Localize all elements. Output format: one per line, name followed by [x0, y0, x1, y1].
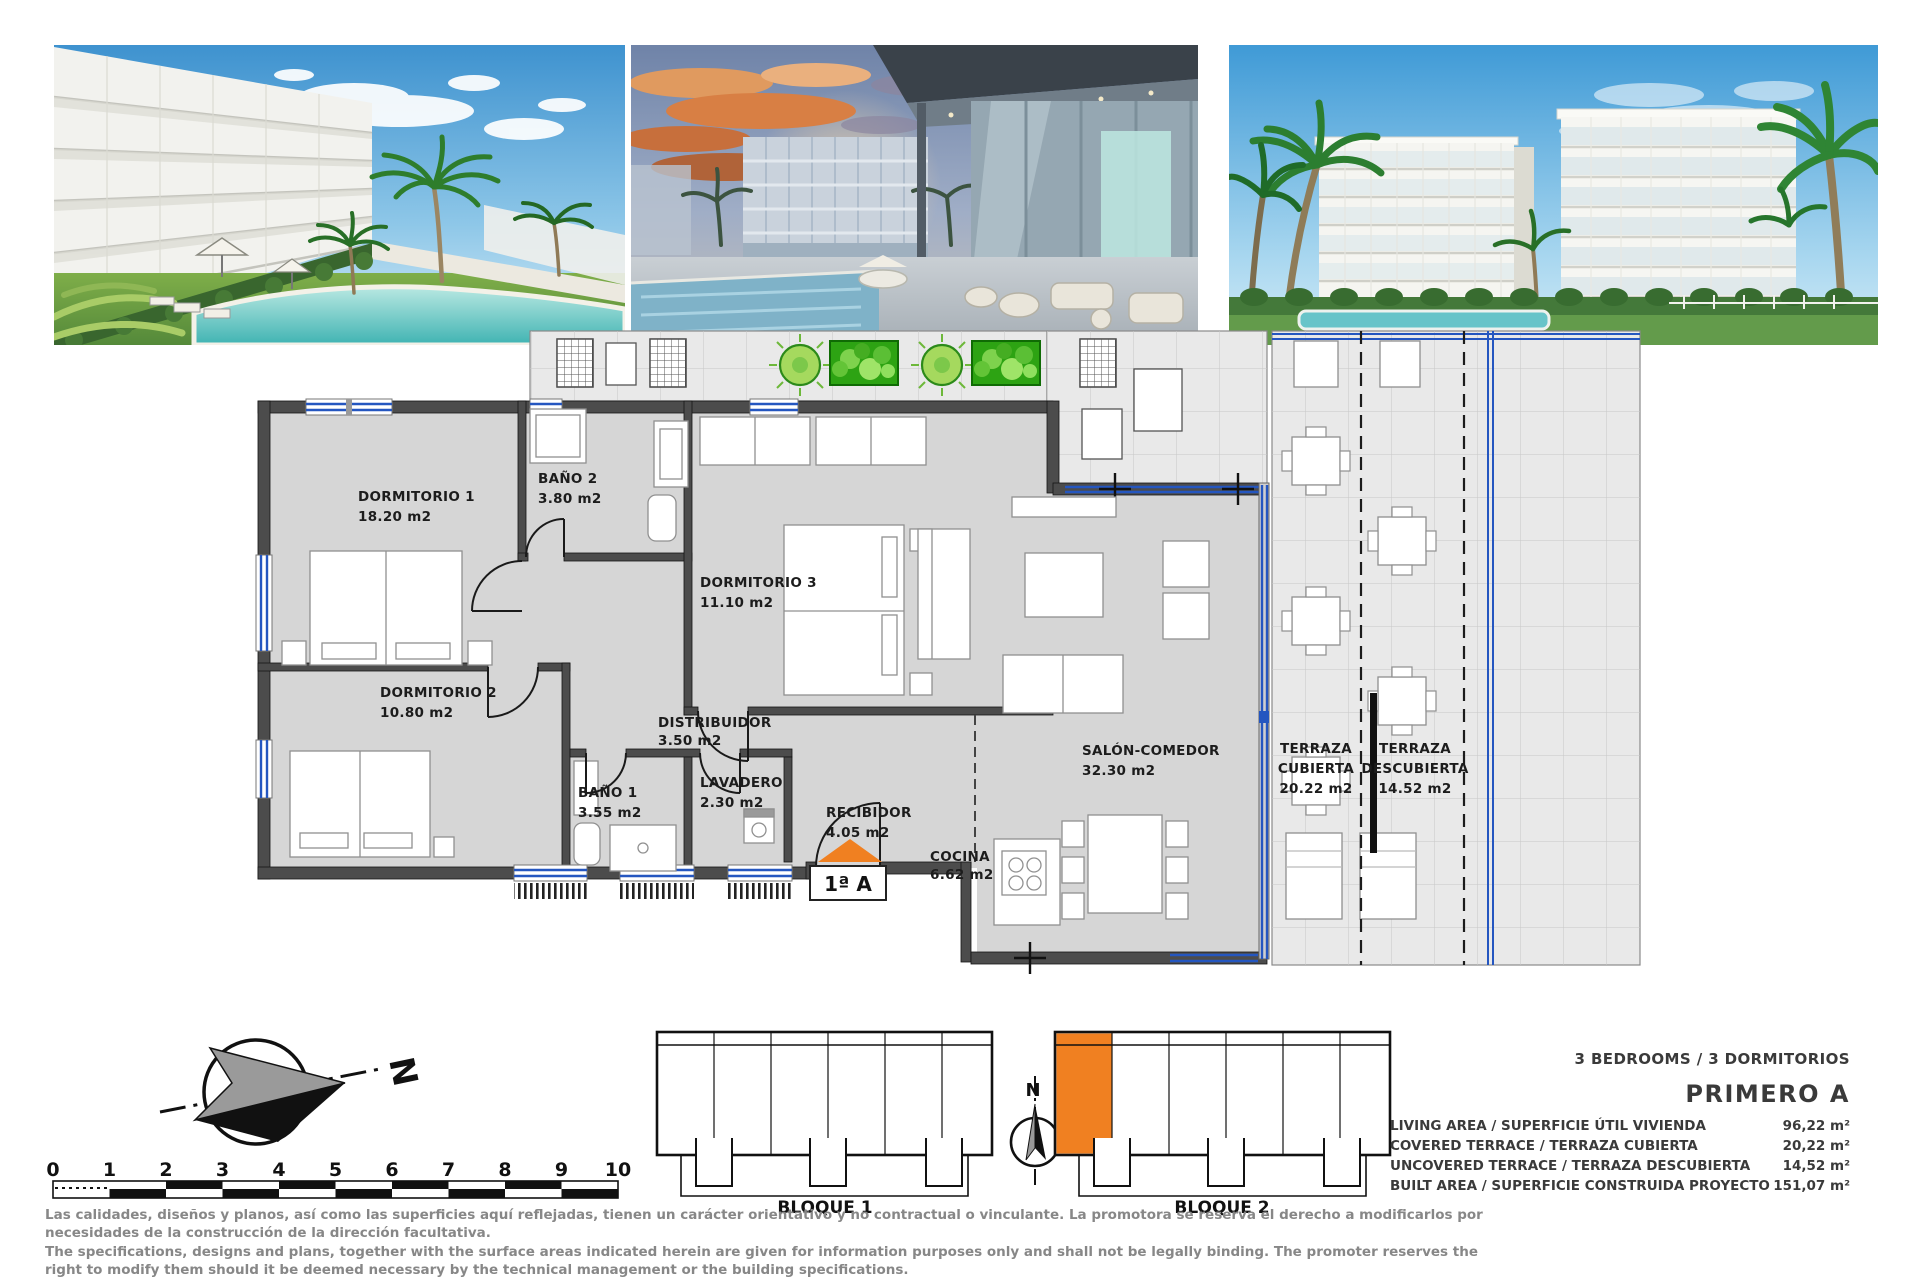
detail-label: BUILT AREA / SUPERFICIE CONSTRUIDA PROYE… — [1390, 1178, 1770, 1198]
disclaimer-line: The specifications, designs and plans, t… — [45, 1243, 1605, 1261]
svg-text:BAÑO 2: BAÑO 2 — [538, 470, 597, 487]
svg-text:RECIBIDOR: RECIBIDOR — [826, 805, 912, 821]
legal-disclaimer: Las calidades, diseños y planos, así com… — [45, 1206, 1605, 1280]
detail-row-covered-terrace: COVERED TERRACE / TERRAZA CUBIERTA 20,22… — [1390, 1138, 1850, 1158]
svg-text:BAÑO 1: BAÑO 1 — [578, 784, 637, 801]
svg-text:6.62 m2: 6.62 m2 — [930, 867, 994, 883]
svg-text:7: 7 — [442, 1159, 455, 1181]
svg-text:9: 9 — [555, 1159, 568, 1181]
svg-text:TERRAZA: TERRAZA — [1379, 741, 1451, 757]
svg-text:8: 8 — [498, 1159, 511, 1181]
brochure-page: 1ª A DORMITORIO 1 18.20 m2 BAÑO 2 3.80 m… — [0, 0, 1920, 1280]
svg-text:5: 5 — [329, 1159, 342, 1181]
washer — [744, 809, 774, 843]
svg-text:14.52 m2: 14.52 m2 — [1378, 781, 1451, 797]
highlighted-unit — [1057, 1034, 1113, 1154]
svg-text:32.30 m2: 32.30 m2 — [1082, 763, 1155, 779]
bedrooms-header: 3 BEDROOMS / 3 DORMITORIOS — [1390, 1050, 1850, 1068]
disclaimer-line: right to modify them should it be deemed… — [45, 1261, 1605, 1279]
svg-text:SALÓN-COMEDOR: SALÓN-COMEDOR — [1082, 741, 1220, 759]
sunset-terrace-illustration — [631, 45, 1198, 345]
bed-dormitorio-1 — [282, 551, 492, 665]
floor-plan: 1ª A DORMITORIO 1 18.20 m2 BAÑO 2 3.80 m… — [230, 325, 1650, 1005]
photo-sunset-terrace-render — [631, 45, 1198, 345]
unit-badge: 1ª A — [824, 872, 872, 896]
compass-small-north-label: N — [1025, 1080, 1040, 1101]
detail-row-living-area: LIVING AREA / SUPERFICIE ÚTIL VIVIENDA 9… — [1390, 1118, 1850, 1138]
detail-value: 151,07 m² — [1773, 1178, 1850, 1198]
svg-text:DESCUBIERTA: DESCUBIERTA — [1361, 761, 1469, 777]
detail-label: COVERED TERRACE / TERRAZA CUBIERTA — [1390, 1138, 1698, 1158]
photo-facade-pool-render — [1229, 45, 1878, 345]
dining-set — [1062, 815, 1188, 919]
disclaimer-line: necesidades de la construcción de la dir… — [45, 1224, 1605, 1242]
svg-text:2.30 m2: 2.30 m2 — [700, 795, 764, 811]
scale-bar: 0 1 2 3 4 5 6 7 8 9 10 — [46, 1159, 631, 1198]
sofa-2 — [1003, 655, 1123, 713]
svg-text:18.20 m2: 18.20 m2 — [358, 509, 431, 525]
svg-text:10.80 m2: 10.80 m2 — [380, 705, 453, 721]
detail-label: UNCOVERED TERRACE / TERRAZA DESCUBIERTA — [1390, 1158, 1750, 1178]
svg-text:DORMITORIO 2: DORMITORIO 2 — [380, 685, 497, 701]
svg-text:CUBIERTA: CUBIERTA — [1278, 761, 1354, 777]
detail-value: 14,52 m² — [1783, 1158, 1850, 1178]
svg-text:4.05 m2: 4.05 m2 — [826, 825, 890, 841]
svg-text:3.80 m2: 3.80 m2 — [538, 491, 602, 507]
room-label-terraza-cubierta: TERRAZA CUBIERTA 20.22 m2 — [1278, 741, 1354, 797]
svg-text:4: 4 — [272, 1159, 285, 1181]
bed-dormitorio-2 — [290, 751, 454, 857]
kitchen-island — [994, 839, 1060, 925]
coffee-table — [1025, 553, 1103, 617]
svg-text:6: 6 — [385, 1159, 398, 1181]
svg-text:LAVADERO: LAVADERO — [700, 775, 783, 791]
svg-text:11.10 m2: 11.10 m2 — [700, 595, 773, 611]
detail-label: LIVING AREA / SUPERFICIE ÚTIL VIVIENDA — [1390, 1118, 1706, 1138]
svg-text:3: 3 — [216, 1159, 229, 1181]
disclaimer-line: Las calidades, diseños y planos, así com… — [45, 1206, 1605, 1224]
bloque-1-diagram: BLOQUE 1 — [657, 1032, 992, 1218]
pool-garden-illustration — [54, 45, 625, 345]
building-right — [1557, 109, 1800, 307]
scale-segments — [53, 1181, 618, 1198]
compass-small-icon: N — [1011, 1076, 1059, 1188]
svg-text:1: 1 — [103, 1159, 116, 1181]
unit-name: PRIMERO A — [1390, 1080, 1850, 1108]
svg-text:10: 10 — [605, 1159, 631, 1181]
detail-row-built-area: BUILT AREA / SUPERFICIE CONSTRUIDA PROYE… — [1390, 1178, 1850, 1198]
svg-text:3.50 m2: 3.50 m2 — [658, 733, 722, 749]
svg-text:3.55 m2: 3.55 m2 — [578, 805, 642, 821]
detail-row-uncovered-terrace: UNCOVERED TERRACE / TERRAZA DESCUBIERTA … — [1390, 1158, 1850, 1178]
sofa-1 — [918, 529, 970, 659]
scale-numbers: 0 1 2 3 4 5 6 7 8 9 10 — [46, 1159, 631, 1181]
svg-text:DORMITORIO 3: DORMITORIO 3 — [700, 575, 817, 591]
bloque-2-diagram: BLOQUE 2 — [1055, 1032, 1390, 1218]
svg-text:COCINA: COCINA — [930, 849, 990, 865]
facade-pool-illustration — [1229, 45, 1878, 345]
detail-value: 96,22 m² — [1783, 1118, 1850, 1138]
svg-text:TERRAZA: TERRAZA — [1280, 741, 1352, 757]
svg-text:DORMITORIO 1: DORMITORIO 1 — [358, 489, 475, 505]
photo-pool-garden-render — [54, 45, 625, 345]
bottom-strip: N 0 1 2 3 4 5 6 7 8 9 10 — [40, 1020, 1400, 1220]
unit-details: 3 BEDROOMS / 3 DORMITORIOS PRIMERO A LIV… — [1390, 1050, 1850, 1198]
compass-north-label: N — [380, 1054, 425, 1090]
svg-text:0: 0 — [46, 1159, 59, 1181]
detail-value: 20,22 m² — [1783, 1138, 1850, 1158]
svg-text:2: 2 — [159, 1159, 172, 1181]
svg-text:20.22 m2: 20.22 m2 — [1279, 781, 1352, 797]
svg-text:DISTRIBUIDOR: DISTRIBUIDOR — [658, 715, 772, 731]
tv-sideboard — [1012, 497, 1116, 517]
compass-rose-icon: N — [160, 1040, 425, 1144]
